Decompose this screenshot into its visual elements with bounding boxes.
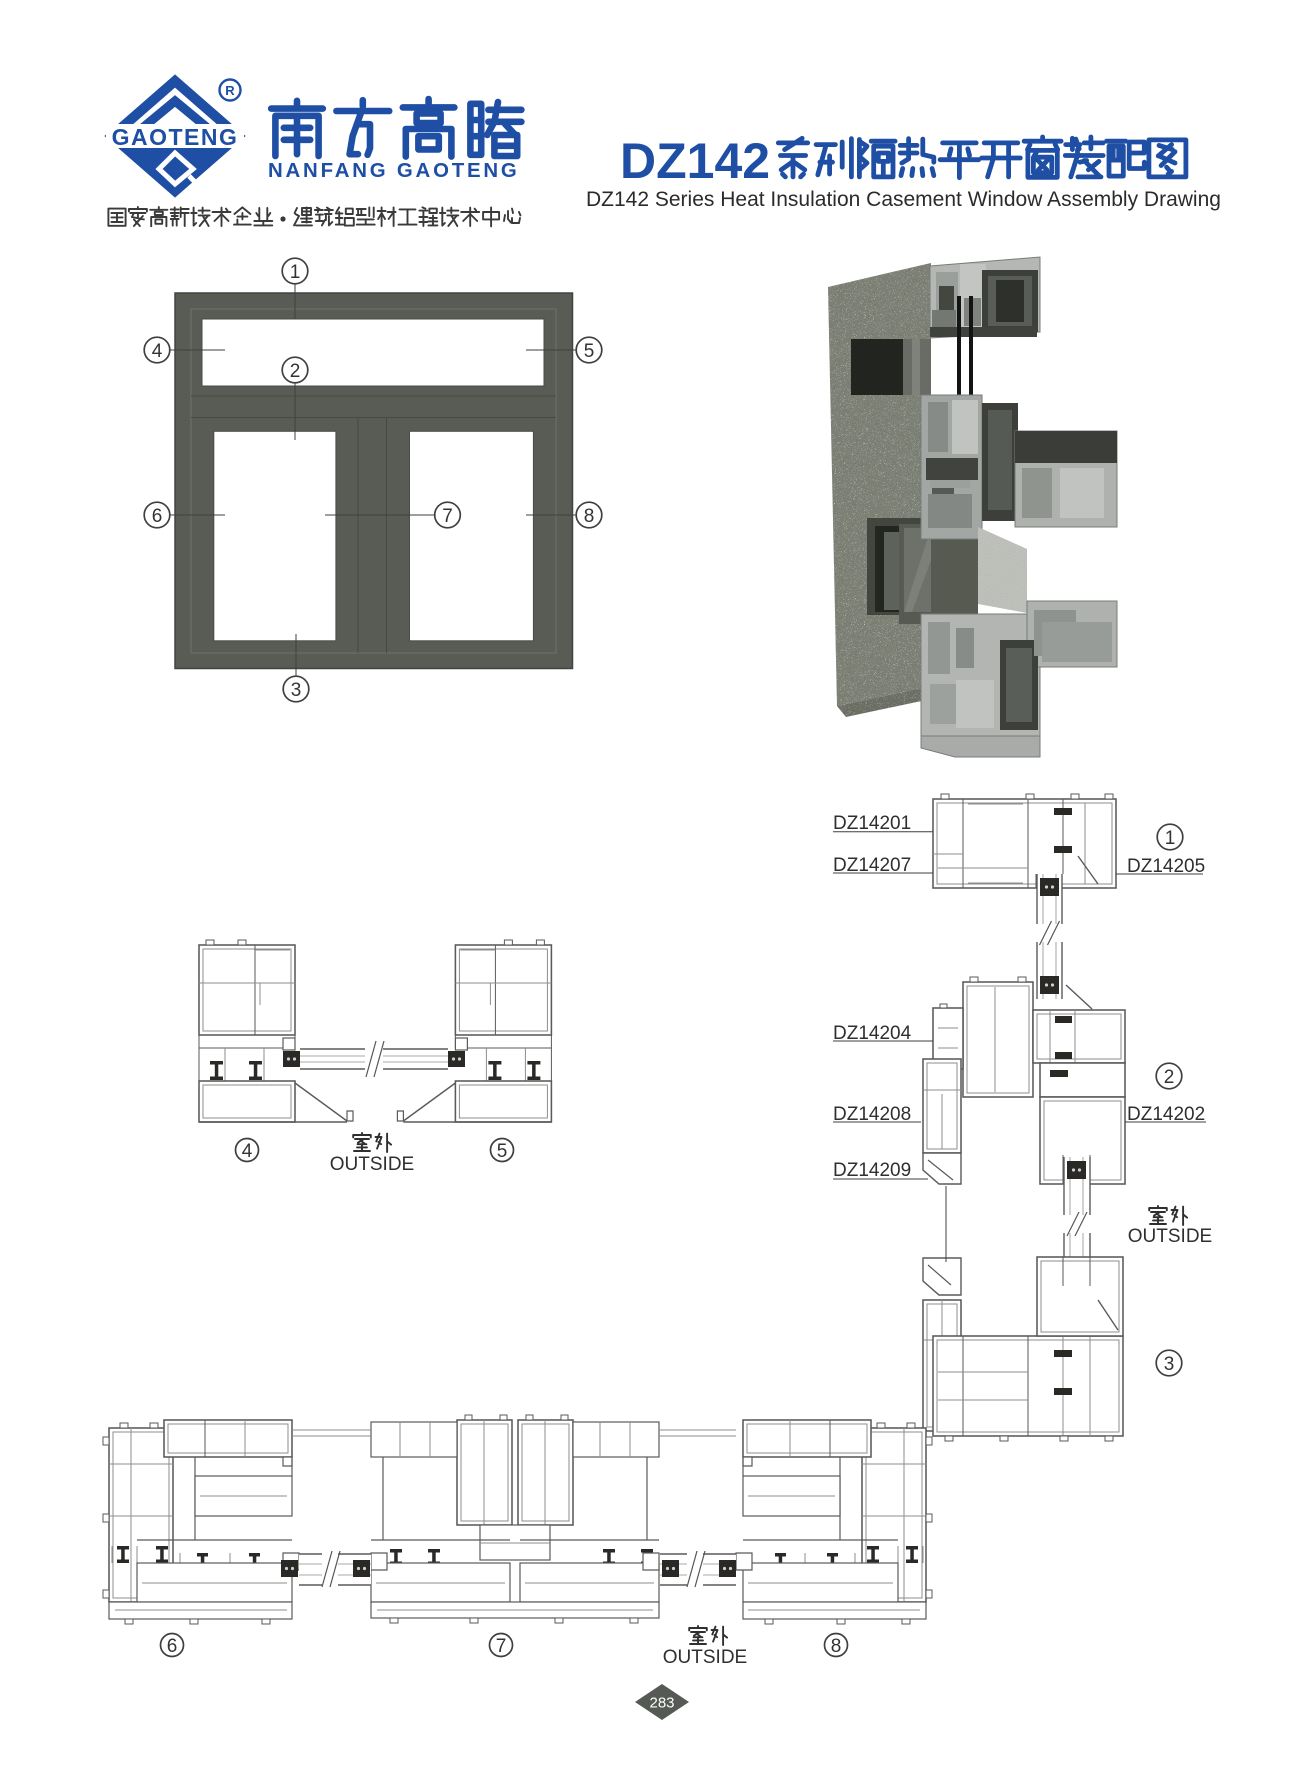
svg-text:5: 5 xyxy=(584,341,595,362)
svg-text:7: 7 xyxy=(496,1636,507,1657)
svg-text:DZ142: DZ142 xyxy=(620,133,770,189)
svg-text:4: 4 xyxy=(242,1141,253,1162)
svg-text:3: 3 xyxy=(291,680,302,701)
svg-text:DZ14209: DZ14209 xyxy=(833,1160,911,1181)
svg-text:2: 2 xyxy=(290,361,301,382)
svg-text:2: 2 xyxy=(1164,1067,1175,1088)
svg-text:DZ142 Series Heat Insulation C: DZ142 Series Heat Insulation Casement Wi… xyxy=(586,188,1221,211)
svg-text:DZ14201: DZ14201 xyxy=(833,813,911,834)
svg-text:OUTSIDE: OUTSIDE xyxy=(663,1647,747,1668)
svg-text:8: 8 xyxy=(584,506,595,527)
svg-text:4: 4 xyxy=(152,341,163,362)
svg-text:6: 6 xyxy=(152,506,163,527)
svg-text:GAOTENG: GAOTENG xyxy=(112,124,239,150)
svg-text:NANFANG GAOTENG: NANFANG GAOTENG xyxy=(268,160,520,182)
svg-text:OUTSIDE: OUTSIDE xyxy=(330,1154,414,1175)
svg-text:3: 3 xyxy=(1164,1354,1175,1375)
svg-text:5: 5 xyxy=(497,1141,508,1162)
svg-text:283: 283 xyxy=(649,1695,674,1712)
svg-text:8: 8 xyxy=(831,1636,842,1657)
svg-text:1: 1 xyxy=(290,262,301,283)
svg-text:6: 6 xyxy=(167,1636,178,1657)
svg-text:1: 1 xyxy=(1165,828,1176,849)
svg-text:OUTSIDE: OUTSIDE xyxy=(1128,1226,1212,1247)
svg-text:R: R xyxy=(225,83,235,98)
svg-text:7: 7 xyxy=(442,506,453,527)
